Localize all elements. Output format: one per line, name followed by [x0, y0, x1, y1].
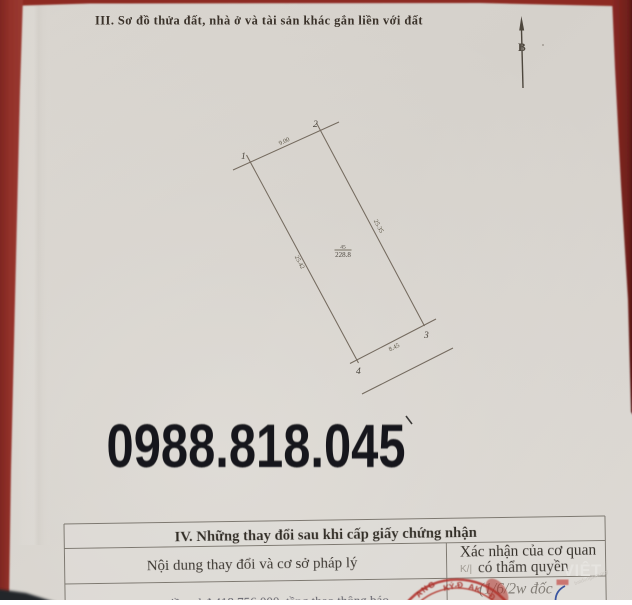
svg-text:1: 1 — [241, 152, 246, 162]
svg-text:Nội dung thay đổi và cơ sở phá: Nội dung thay đổi và cơ sở pháp lý — [147, 555, 359, 574]
svg-text:III. Sơ đồ thửa đất, nhà ở và: III. Sơ đồ thửa đất, nhà ở và tài sản kh… — [95, 14, 423, 28]
svg-text:2: 2 — [313, 120, 318, 130]
svg-text:45: 45 — [340, 245, 346, 251]
svg-text:B: B — [518, 42, 526, 54]
svg-text:228.8: 228.8 — [335, 251, 351, 259]
svg-text:có thẩm quyền: có thẩm quyền — [478, 558, 569, 576]
svg-text:K/|: K/| — [460, 564, 472, 575]
svg-text:3: 3 — [423, 331, 429, 341]
svg-text:4: 4 — [356, 367, 361, 377]
svg-text:0988.818.045: 0988.818.045 — [107, 412, 406, 481]
